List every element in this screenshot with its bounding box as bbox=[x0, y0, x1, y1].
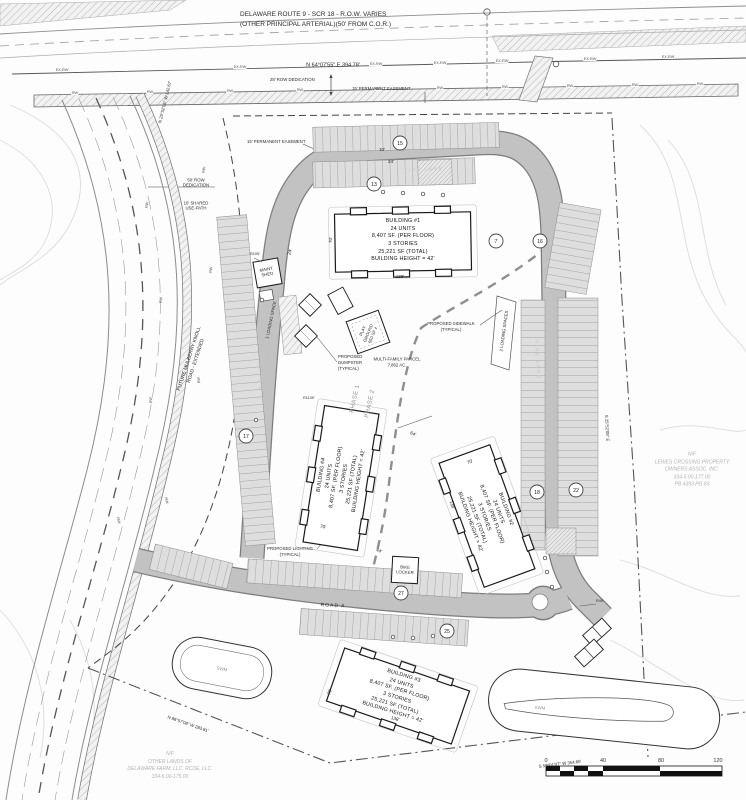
r49-label: R49' bbox=[596, 599, 604, 604]
svg-text:7: 7 bbox=[495, 239, 498, 245]
owner-lewes-l3: OWNERS ASSOC. INC. bbox=[655, 466, 729, 474]
b4-dim-70: 70' bbox=[320, 524, 327, 531]
b1-dim-70: 70' bbox=[328, 237, 334, 243]
building-1-label: BUILDING #1 24 UNITS 8,407 SF. (PER FLOO… bbox=[371, 218, 435, 264]
route9-bearing: N 64°07'55" E 394.78' bbox=[306, 63, 360, 70]
proposed-dumpster-l3: (TYPICAL) bbox=[338, 366, 362, 372]
svg-text:RW: RW bbox=[145, 201, 150, 208]
svg-text:EX-RW: EX-RW bbox=[56, 68, 69, 72]
svg-text:13: 13 bbox=[371, 182, 377, 188]
r105-label: R105' bbox=[250, 252, 260, 257]
parcel-l2: 7.862 AC. bbox=[374, 363, 421, 369]
svg-text:120: 120 bbox=[713, 758, 722, 764]
proposed-dumpster-label: PROPOSED DUMPSTER (TYPICAL) bbox=[338, 354, 362, 372]
road-a-label: ROAD A bbox=[320, 602, 345, 610]
shared-use-path-l2: USE-PATH bbox=[184, 206, 209, 211]
row-dedication-28-label: 28' ROW DEDICATION bbox=[270, 77, 315, 82]
site-plan: EX-RW EX-RW EX-RW EX-RW EX-RW EX-RW EX-R… bbox=[0, 0, 746, 800]
svg-text:22: 22 bbox=[573, 488, 579, 494]
svg-text:15: 15 bbox=[397, 141, 403, 147]
svg-text:EX-RW: EX-RW bbox=[584, 57, 597, 61]
owner-farm-l4: 334-5.00-175.00 bbox=[127, 774, 212, 782]
owner-farm-l2: OTHER LANDS OF bbox=[127, 759, 212, 767]
dim-10-top: 10' bbox=[379, 147, 385, 153]
svg-text:EX-RW: EX-RW bbox=[434, 61, 447, 65]
svg-text:RW: RW bbox=[72, 91, 79, 95]
mulberry-road bbox=[6, 95, 187, 800]
route9-title-line1: DELAWARE ROUTE 9 - SCR 18 - R.O.W. VARIE… bbox=[240, 10, 391, 20]
route9-title-line2: (OTHER PRINCIPAL ARTERIAL)(50' FROM C.O.… bbox=[240, 20, 391, 30]
svg-text:80: 80 bbox=[658, 758, 664, 764]
svg-text:EX-RW: EX-RW bbox=[496, 59, 509, 63]
proposed-lighting-label: PROPOSED LIGHTING (TYPICAL) bbox=[267, 546, 313, 558]
building-4-label: BUILDING #4 24 UNITS 8,407 SF. (PER FLOO… bbox=[313, 443, 368, 513]
row-dedication-50-l2: DEDICATION bbox=[183, 183, 209, 188]
owner-farm-l3: DELAWARE FARM, LLC. RCDE, LLC. bbox=[127, 766, 212, 774]
owner-lewes-l1: N/F bbox=[655, 451, 729, 459]
dumpster-pads-se bbox=[575, 618, 612, 667]
bike-locker-l2: LOCKER bbox=[396, 570, 414, 576]
owner-delaware-farm: N/F OTHER LANDS OF DELAWARE FARM, LLC. R… bbox=[127, 751, 212, 781]
proposed-sidewalk-label: PROPOSED SIDEWALK (TYPICAL) bbox=[427, 321, 475, 333]
route9-title: DELAWARE ROUTE 9 - SCR 18 - R.O.W. VARIE… bbox=[240, 10, 391, 30]
r1139-label: R1139' bbox=[303, 396, 315, 401]
svg-text:RW: RW bbox=[116, 516, 122, 523]
dumpster-pads-west bbox=[295, 287, 353, 347]
svg-text:16: 16 bbox=[537, 239, 543, 245]
svg-text:17: 17 bbox=[243, 434, 249, 440]
building-1-stories: 3 STORIES bbox=[371, 241, 435, 249]
parcel-label: MULTI-FAMILY PARCEL 7.862 AC. bbox=[374, 357, 421, 370]
svg-text:EX-RW: EX-RW bbox=[662, 55, 675, 59]
svg-text:27: 27 bbox=[398, 591, 404, 597]
owner-lewes-l5: PB 4393 PG 83 bbox=[655, 481, 729, 489]
building-1-height: BUILDING HEIGHT = 42' bbox=[371, 256, 435, 264]
svg-text:18: 18 bbox=[534, 490, 540, 496]
row-dedication-50-label: 50' ROW DEDICATION bbox=[183, 178, 209, 189]
permanent-easement-label-1: 15' PERMANENT EASEMENT bbox=[352, 86, 411, 91]
svg-text:RW: RW bbox=[437, 86, 444, 90]
svg-text:RW: RW bbox=[159, 296, 164, 303]
proposed-sidewalk-l2: (TYPICAL) bbox=[427, 327, 475, 333]
proposed-lighting-l2: (TYPICAL) bbox=[267, 552, 313, 558]
owner-lewes-l4: 334-5.00-177.00 bbox=[655, 474, 729, 482]
b1-dim-138: 138' bbox=[396, 274, 405, 280]
permanent-easement-label-2: 15' PERMANENT EASEMENT bbox=[247, 139, 306, 144]
dim-24-top: 24' bbox=[388, 159, 394, 165]
svg-text:RW: RW bbox=[297, 88, 304, 92]
building-1-name: BUILDING #1 bbox=[371, 218, 435, 226]
svg-text:RW: RW bbox=[632, 83, 639, 87]
svg-text:RW: RW bbox=[502, 85, 509, 89]
building-1-units: 24 UNITS bbox=[371, 226, 435, 234]
svg-text:40: 40 bbox=[600, 758, 606, 764]
svg-text:25: 25 bbox=[444, 629, 450, 635]
owner-lewes-l2: LEWES CROSSING PROPERTY bbox=[655, 459, 729, 467]
svg-text:EX-RW: EX-RW bbox=[234, 65, 247, 69]
svg-text:RW: RW bbox=[567, 84, 574, 88]
svg-text:RW: RW bbox=[697, 82, 704, 86]
svg-text:RW: RW bbox=[197, 376, 202, 383]
owner-farm-l1: N/F bbox=[127, 751, 212, 759]
bike-locker-label: BIKE LOCKER bbox=[396, 564, 414, 576]
svg-text:RW: RW bbox=[147, 90, 154, 94]
svg-text:RW: RW bbox=[227, 89, 234, 93]
owner-lewes-crossing: N/F LEWES CROSSING PROPERTY OWNERS ASSOC… bbox=[655, 451, 729, 489]
building-1-perfloor: 8,407 SF. (PER FLOOR) bbox=[371, 233, 435, 241]
swm-right-label: SWM bbox=[535, 705, 546, 711]
svg-text:EX-RW: EX-RW bbox=[370, 62, 383, 66]
shared-use-path-label: 10' SHARED USE-PATH bbox=[184, 201, 209, 212]
svg-text:RW: RW bbox=[164, 496, 170, 503]
building-1-total: 25,221 SF (TOTAL) bbox=[371, 249, 435, 257]
svg-text:RW: RW bbox=[209, 266, 214, 273]
svg-text:RW: RW bbox=[202, 166, 207, 173]
